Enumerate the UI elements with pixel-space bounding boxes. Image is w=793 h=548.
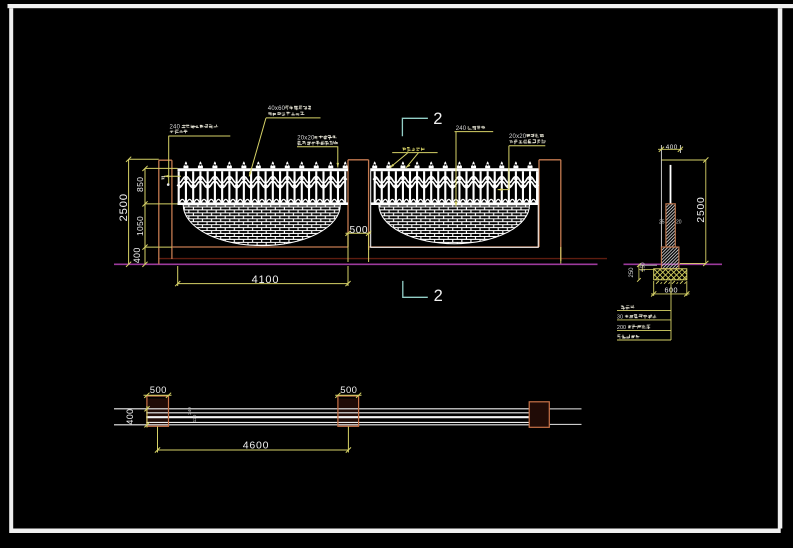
svg-text:2500: 2500 [118,193,130,221]
svg-text:40x60: 40x60 [268,106,286,112]
svg-text:400: 400 [666,144,678,151]
svg-text:20x20: 20x20 [297,135,315,141]
svg-text:240: 240 [187,407,192,415]
svg-text:500: 500 [150,385,167,396]
svg-text:4600: 4600 [243,439,270,451]
svg-text:250: 250 [629,267,635,278]
svg-text:20: 20 [676,219,682,225]
svg-text:30: 30 [617,314,623,320]
svg-text:2500: 2500 [696,196,707,222]
svg-text:850: 850 [135,177,145,192]
svg-text:25: 25 [659,219,665,225]
svg-text:200: 200 [617,325,626,331]
svg-text:400: 400 [125,409,135,425]
svg-text:240: 240 [170,124,181,130]
svg-text:1050: 1050 [135,216,145,236]
svg-text:500: 500 [350,225,369,236]
svg-text:20x20: 20x20 [509,134,527,140]
svg-text:400: 400 [132,247,142,263]
svg-text:2: 2 [434,287,443,305]
svg-text:4100: 4100 [252,274,280,286]
svg-text:150: 150 [640,262,646,271]
svg-text:120: 120 [192,414,197,422]
svg-text:2: 2 [433,110,442,128]
svg-text:500: 500 [340,385,357,396]
